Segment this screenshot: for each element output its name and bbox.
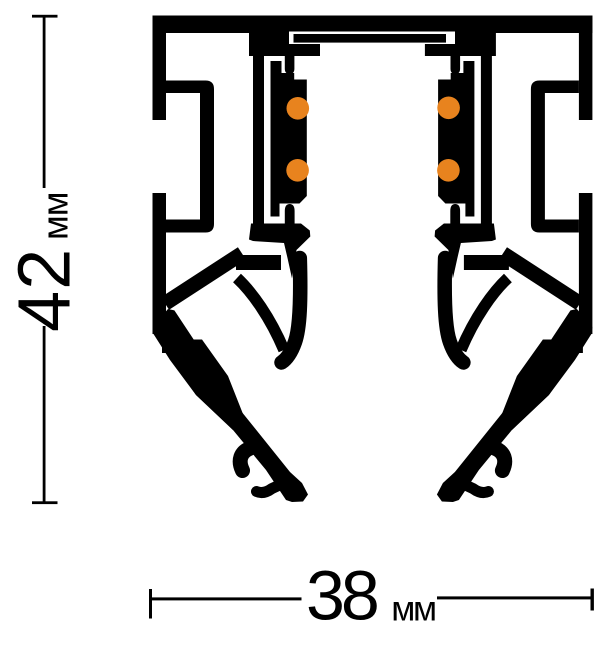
svg-text:мм: мм [391,590,435,629]
svg-text:мм: мм [35,193,76,241]
svg-text:42: 42 [3,248,86,332]
svg-text:38: 38 [306,557,377,635]
